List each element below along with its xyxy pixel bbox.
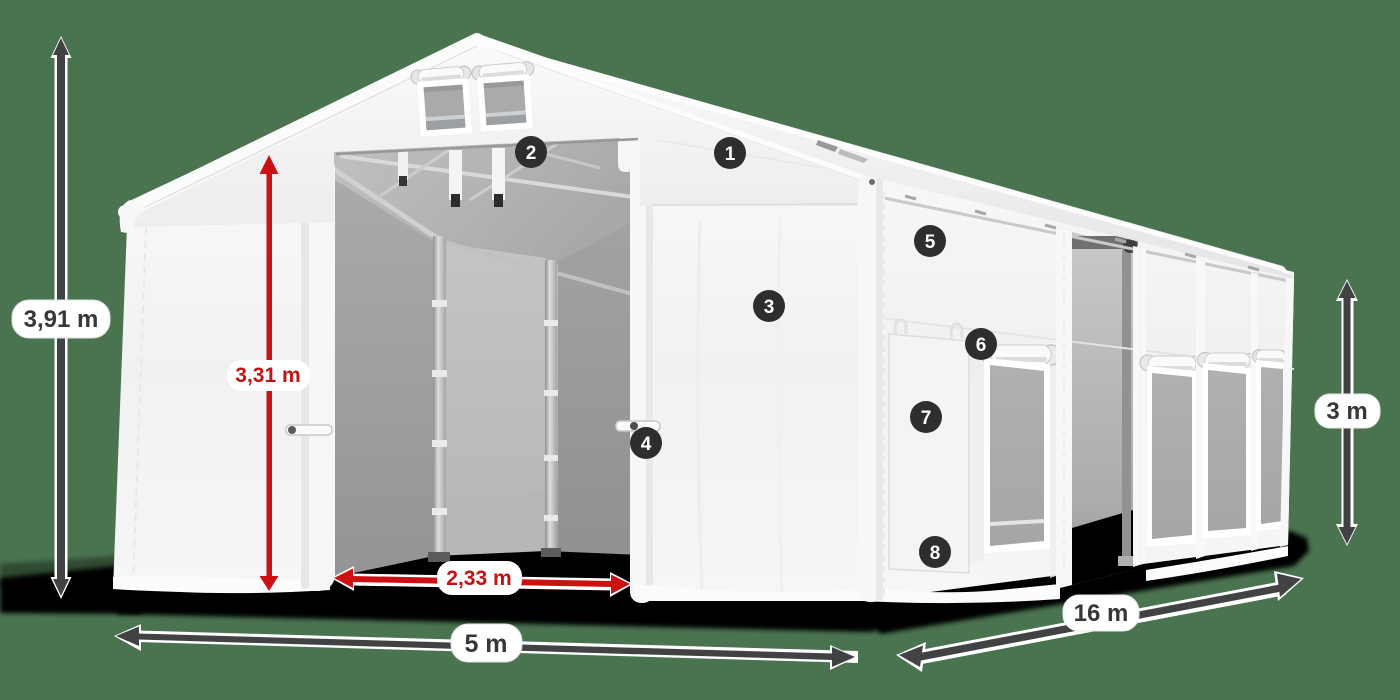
svg-text:3,31 m: 3,31 m <box>235 364 300 387</box>
svg-text:3 m: 3 m <box>1326 398 1367 425</box>
svg-text:4: 4 <box>641 434 652 455</box>
svg-text:1: 1 <box>725 144 736 165</box>
svg-text:6: 6 <box>976 335 987 356</box>
svg-text:5: 5 <box>925 232 936 253</box>
svg-text:2,33 m: 2,33 m <box>446 567 511 590</box>
svg-text:2: 2 <box>526 143 537 164</box>
svg-text:8: 8 <box>930 543 941 564</box>
svg-text:3,91 m: 3,91 m <box>24 306 99 333</box>
svg-text:5 m: 5 m <box>464 630 507 658</box>
svg-text:3: 3 <box>764 297 775 318</box>
svg-text:16 m: 16 m <box>1074 600 1129 627</box>
svg-text:7: 7 <box>921 408 932 429</box>
